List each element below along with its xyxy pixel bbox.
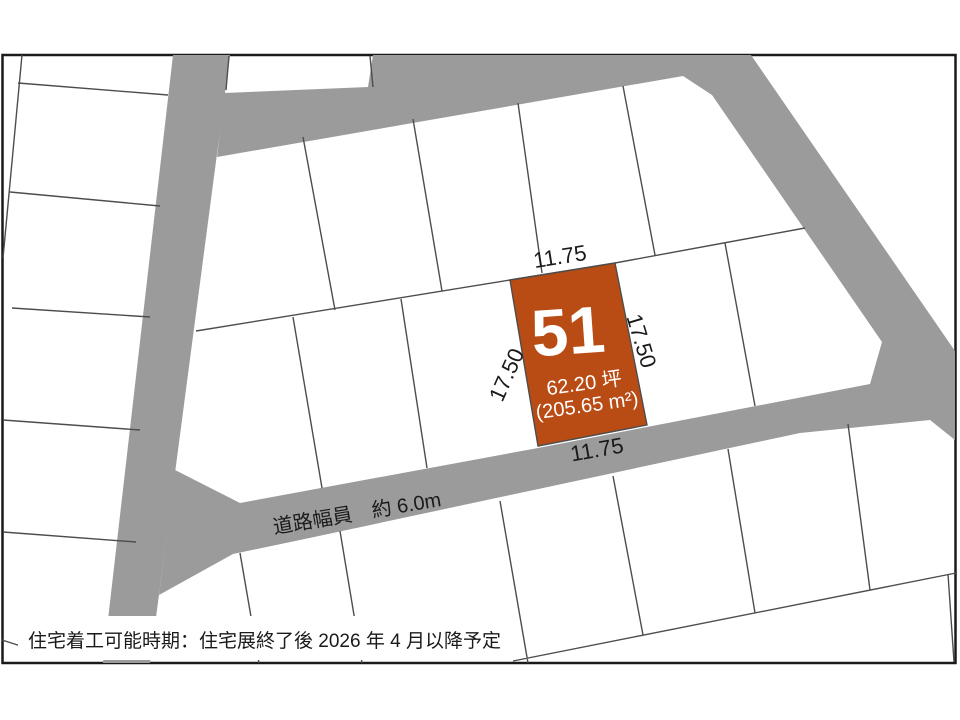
site-plan-map: 51 62.20 坪 (205.65 m²) 11.75 11.75 17.50… (0, 0, 960, 720)
lot-number-label: 51 (529, 292, 607, 371)
site-plan-svg: 51 62.20 坪 (205.65 m²) 11.75 11.75 17.50… (0, 0, 960, 720)
construction-note: 住宅着工可能時期：住宅展終了後 2026 年 4 月以降予定 (28, 630, 501, 652)
